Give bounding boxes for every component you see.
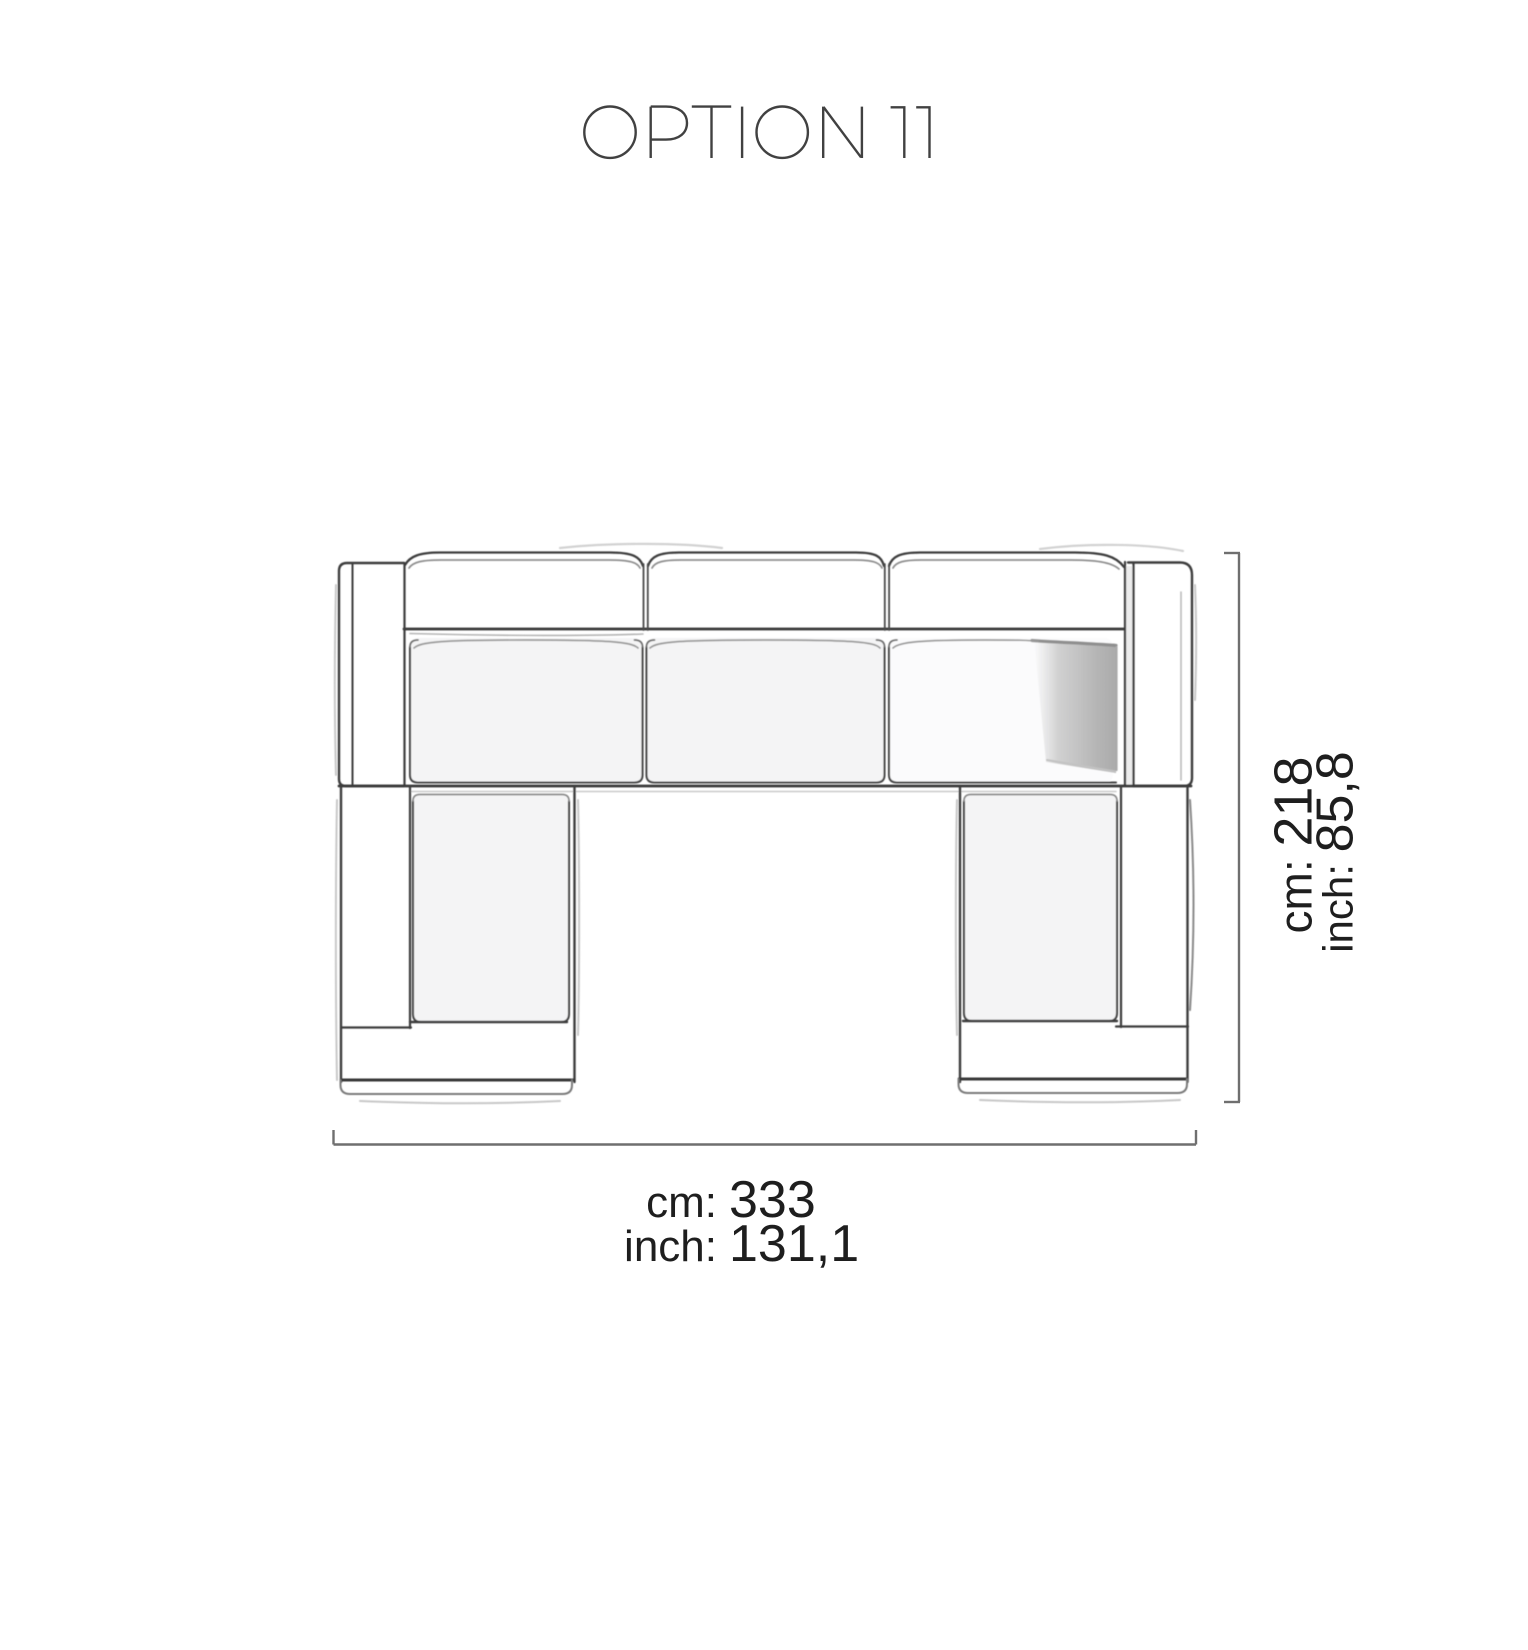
svg-text:inch:: inch: (624, 1222, 717, 1271)
svg-text:inch: 85,8: inch: 85,8 (1307, 751, 1365, 953)
svg-text:131,1: 131,1 (729, 1215, 859, 1273)
svg-text:cm:: cm: (646, 1178, 717, 1227)
